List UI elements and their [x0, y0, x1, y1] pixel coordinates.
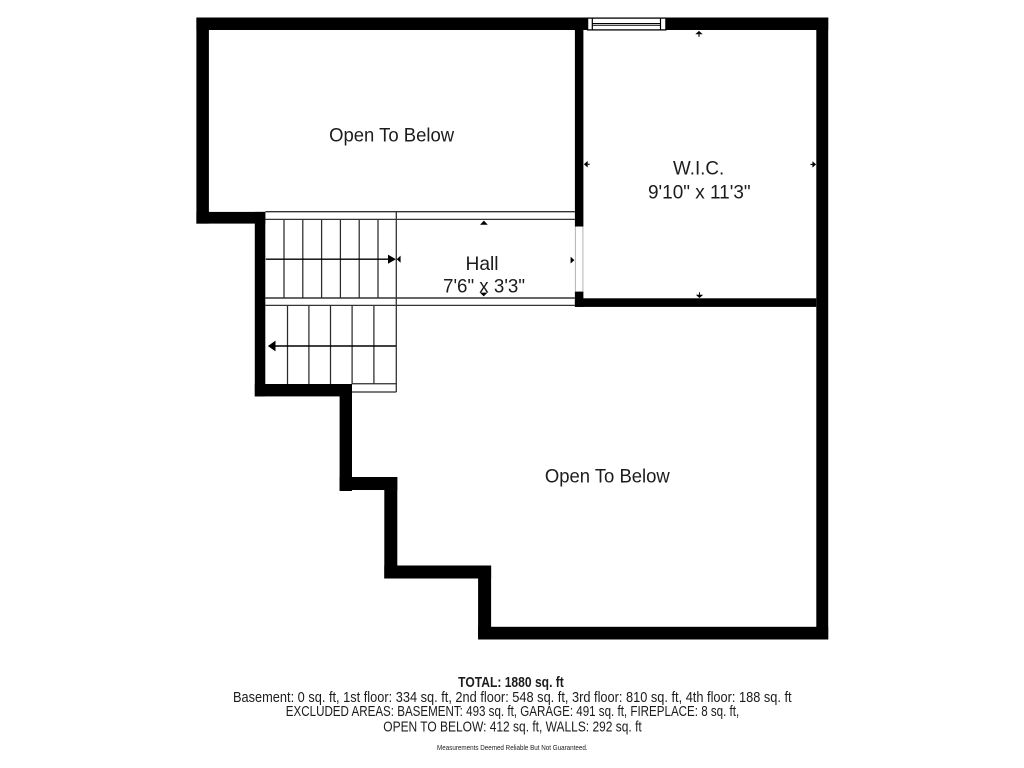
- svg-text:EXCLUDED AREAS: BASEMENT: 493: EXCLUDED AREAS: BASEMENT: 493 sq. ft, GA…: [286, 703, 739, 720]
- svg-text:OPEN TO BELOW: 412 sq. ft, WAL: OPEN TO BELOW: 412 sq. ft, WALLS: 292 sq…: [383, 718, 642, 734]
- svg-text:W.I.C.: W.I.C.: [673, 158, 724, 179]
- svg-text:Open To Below: Open To Below: [329, 124, 454, 145]
- svg-text:7'6" x 3'3": 7'6" x 3'3": [443, 276, 525, 297]
- svg-text:Open To Below: Open To Below: [545, 465, 670, 486]
- svg-text:Hall: Hall: [465, 254, 498, 275]
- svg-text:Measurements Deemed Reliable B: Measurements Deemed Reliable But Not Gua…: [437, 745, 588, 753]
- svg-text:9'10" x 11'3": 9'10" x 11'3": [648, 182, 751, 203]
